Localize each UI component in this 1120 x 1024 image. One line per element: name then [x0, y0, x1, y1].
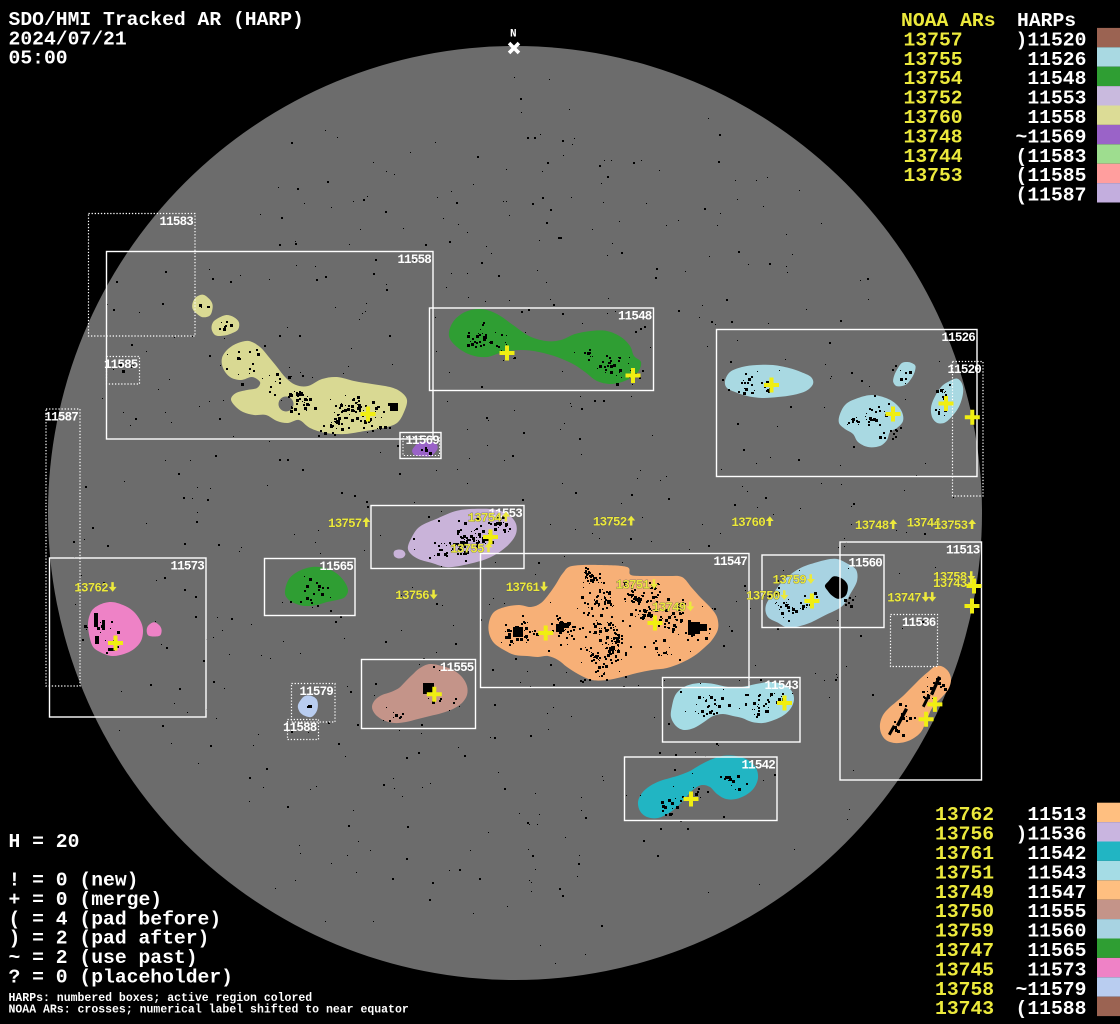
- svg-text:11583: 11583: [159, 215, 193, 229]
- svg-text:13762: 13762: [74, 581, 108, 595]
- svg-text:13752: 13752: [593, 516, 627, 530]
- svg-text:11548: 11548: [618, 310, 652, 324]
- svg-text:(11587: (11587: [1016, 185, 1087, 207]
- svg-text:13759: 13759: [773, 574, 807, 588]
- svg-text:? = 0 (placeholder): ? = 0 (placeholder): [9, 967, 233, 989]
- svg-text:11558: 11558: [397, 253, 431, 267]
- svg-text:13753: 13753: [934, 519, 968, 533]
- svg-text:13756: 13756: [395, 589, 429, 603]
- svg-text:13760: 13760: [731, 516, 765, 530]
- svg-text:11560: 11560: [848, 557, 882, 571]
- svg-text:11587: 11587: [44, 411, 78, 425]
- svg-text:11585: 11585: [104, 358, 138, 372]
- svg-text:11513: 11513: [946, 544, 980, 558]
- svg-text:11569: 11569: [405, 434, 439, 448]
- svg-text:(11588: (11588: [1016, 998, 1087, 1020]
- svg-text:11588: 11588: [283, 721, 317, 735]
- svg-text:13747: 13747: [887, 591, 921, 605]
- svg-text:11573: 11573: [170, 560, 204, 574]
- svg-text:13750: 13750: [746, 590, 780, 604]
- svg-text:11565: 11565: [319, 560, 353, 574]
- svg-text:11555: 11555: [440, 661, 474, 675]
- svg-text:11536: 11536: [902, 616, 936, 630]
- svg-text:N: N: [510, 29, 517, 41]
- svg-text:H = 20: H = 20: [9, 831, 80, 853]
- svg-text:13743: 13743: [933, 577, 967, 591]
- svg-text:11579: 11579: [299, 685, 333, 699]
- svg-text:13753: 13753: [904, 165, 963, 187]
- svg-text:11520: 11520: [947, 363, 981, 377]
- svg-text:11543: 11543: [764, 679, 798, 693]
- svg-text:13751: 13751: [616, 579, 650, 593]
- svg-text:05:00: 05:00: [9, 48, 68, 70]
- svg-text:13749: 13749: [652, 601, 686, 615]
- svg-text:NOAA ARs: crosses; numerical l: NOAA ARs: crosses; numerical label shift…: [9, 1004, 409, 1017]
- svg-text:13743: 13743: [935, 998, 994, 1020]
- svg-text:13754: 13754: [468, 512, 503, 526]
- svg-text:13757: 13757: [328, 517, 362, 531]
- svg-text:11547: 11547: [713, 555, 747, 569]
- svg-text:13761: 13761: [506, 581, 540, 595]
- svg-text:13755: 13755: [450, 542, 484, 556]
- svg-text:11526: 11526: [941, 331, 975, 345]
- svg-text:11542: 11542: [741, 759, 775, 773]
- svg-text:13748: 13748: [855, 519, 889, 533]
